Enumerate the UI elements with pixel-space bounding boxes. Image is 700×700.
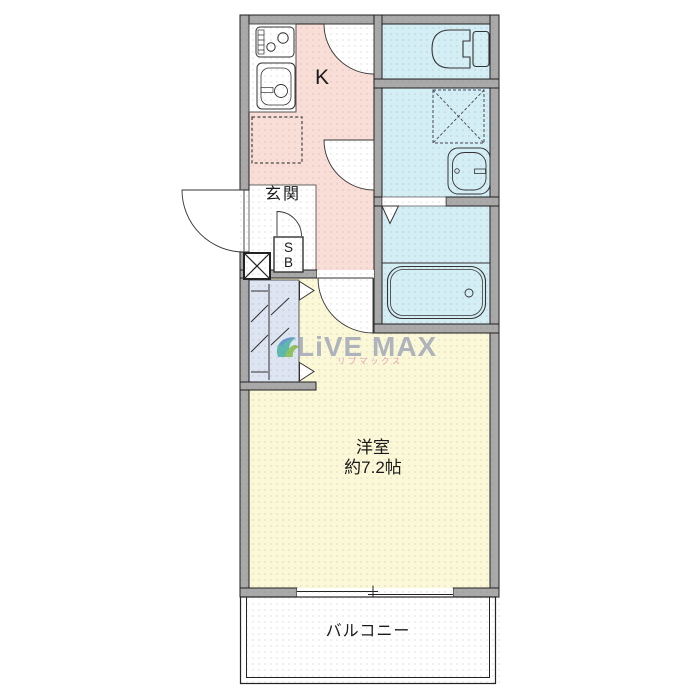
- western-room-name: 洋室: [280, 438, 466, 458]
- wall-top: [240, 15, 499, 24]
- balcony-window-opening: [297, 588, 453, 597]
- meter-box: [244, 253, 270, 279]
- wall-right: [490, 15, 499, 597]
- shoebox-label: S B: [274, 238, 303, 272]
- entrance-label: 玄関: [250, 186, 316, 204]
- floorplan-page: K 玄関 S B 洋室 約7.2帖 バルコニー LiVE MAX リブマックス: [0, 0, 700, 700]
- room-door-opening: [317, 270, 374, 278]
- shoebox-label-s: S: [284, 240, 293, 255]
- balcony-label: バルコニー: [288, 623, 448, 641]
- wall-left-lower: [240, 252, 249, 597]
- kitchen-sink-icon: [257, 63, 295, 109]
- bath-door-opening: [382, 197, 446, 206]
- closet-floor: [249, 280, 299, 382]
- wall-kitchen-wet-divider: [374, 15, 382, 333]
- bathroom-floor: [382, 206, 490, 324]
- wall-bottom-left: [240, 588, 297, 597]
- wall-washroom-bath-left: [374, 197, 382, 206]
- kitchen-label: K: [305, 66, 339, 90]
- western-room-label: 洋室 約7.2帖: [280, 438, 466, 478]
- western-room-size: 約7.2帖: [280, 458, 466, 478]
- wall-toilet-washroom: [374, 79, 499, 88]
- watermark-subtext: リブマックス: [337, 357, 403, 367]
- shoebox-label-b: B: [284, 255, 293, 270]
- stove-icon: [256, 27, 294, 57]
- entrance-door-arc: [182, 190, 244, 252]
- wall-left-upper: [240, 15, 249, 190]
- wall-washroom-bath-right: [446, 197, 499, 206]
- wall-bottom-right: [453, 588, 499, 597]
- wall-closet-bottom: [240, 382, 316, 390]
